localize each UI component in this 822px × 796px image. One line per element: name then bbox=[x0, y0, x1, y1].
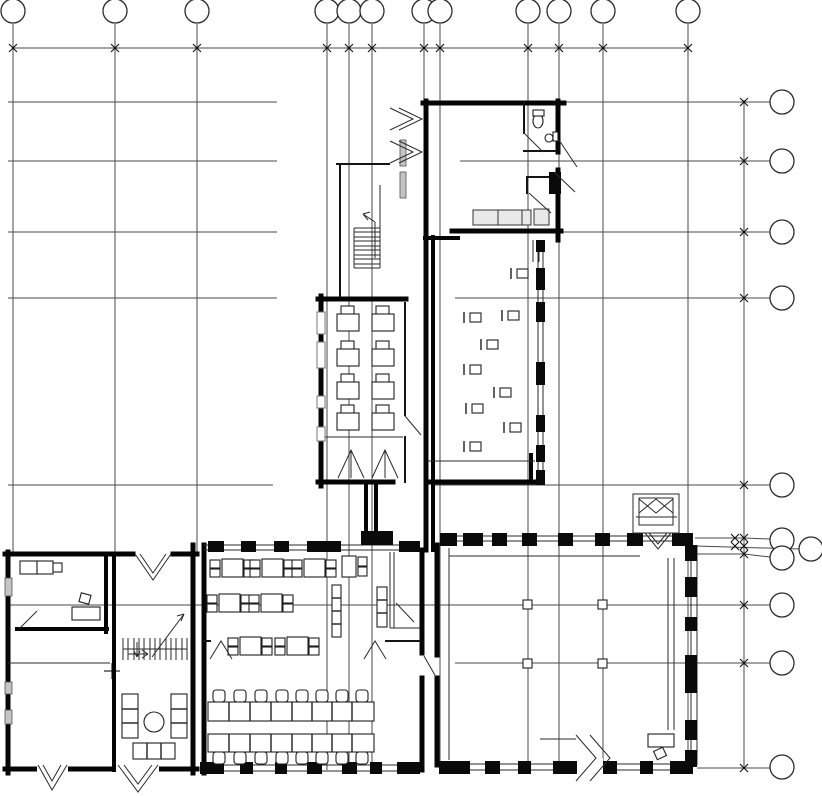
grid-bubbles bbox=[770, 546, 794, 570]
floor-plan-drawing bbox=[0, 0, 822, 796]
furniture bbox=[144, 712, 164, 732]
furniture bbox=[336, 752, 348, 764]
windows-in-wall bbox=[317, 396, 325, 408]
layer-grid-bubbles bbox=[1, 0, 822, 779]
wall-piers bbox=[549, 172, 561, 194]
furniture bbox=[342, 556, 356, 577]
wall-piers bbox=[518, 761, 531, 774]
door-swings-and-symbols bbox=[639, 498, 673, 525]
furniture bbox=[275, 638, 285, 646]
wall-piers bbox=[361, 531, 393, 545]
wall-piers bbox=[685, 617, 697, 631]
wall-piers bbox=[536, 445, 545, 462]
door-swings-and-symbols bbox=[364, 641, 386, 659]
wall-piers bbox=[485, 761, 500, 774]
wall-piers bbox=[685, 750, 697, 767]
furniture bbox=[372, 314, 394, 331]
furniture bbox=[508, 311, 519, 320]
furniture bbox=[207, 595, 217, 603]
furniture bbox=[523, 600, 532, 609]
door-swings-and-symbols bbox=[135, 554, 171, 580]
door-swings-and-symbols bbox=[639, 499, 673, 513]
door-swings-and-symbols bbox=[396, 603, 414, 622]
wall-piers bbox=[536, 302, 545, 322]
wall-piers bbox=[399, 541, 420, 552]
layer-wall-faces-thin bbox=[8, 185, 697, 771]
furniture bbox=[276, 690, 288, 702]
wall-piers bbox=[274, 541, 289, 552]
grid-bubbles bbox=[770, 149, 794, 173]
wall-piers bbox=[439, 761, 470, 774]
grid-bubbles bbox=[770, 473, 794, 497]
furniture bbox=[377, 587, 387, 627]
grid-bubbles bbox=[770, 90, 794, 114]
furniture bbox=[208, 702, 374, 721]
furniture bbox=[210, 560, 220, 568]
wall-piers bbox=[522, 533, 537, 546]
door-swings-and-symbols bbox=[142, 650, 148, 654]
furniture bbox=[337, 382, 359, 399]
furniture bbox=[249, 604, 259, 612]
furniture bbox=[296, 690, 308, 702]
grid-bubbles bbox=[337, 0, 361, 23]
grid-bubbles bbox=[516, 0, 540, 23]
wall-piers bbox=[208, 541, 224, 552]
furniture bbox=[372, 413, 394, 430]
grid-bubbles bbox=[591, 0, 615, 23]
bench-seats bbox=[522, 210, 531, 225]
layer-bench-seats bbox=[473, 209, 549, 225]
wall-piers bbox=[558, 533, 573, 546]
door-swings-and-symbols bbox=[405, 416, 421, 435]
furniture bbox=[219, 594, 240, 612]
layer-walls-medium bbox=[17, 237, 531, 770]
wall-piers bbox=[553, 761, 577, 774]
furniture bbox=[292, 560, 302, 568]
furniture bbox=[276, 752, 288, 764]
grid-bubbles bbox=[770, 286, 794, 310]
furniture bbox=[533, 110, 544, 116]
furniture bbox=[510, 423, 521, 432]
furniture bbox=[207, 604, 217, 612]
furniture bbox=[283, 595, 293, 603]
furniture bbox=[337, 314, 359, 331]
furniture bbox=[213, 752, 225, 764]
furniture bbox=[262, 638, 272, 646]
grid-lines bbox=[744, 554, 770, 557]
door-swings-and-symbols bbox=[140, 554, 166, 573]
furniture bbox=[309, 647, 319, 655]
door-swings-and-symbols bbox=[399, 108, 422, 130]
furniture bbox=[309, 638, 319, 646]
furniture bbox=[316, 690, 328, 702]
layer-walls-exterior bbox=[5, 101, 564, 773]
furniture bbox=[210, 569, 220, 577]
furniture bbox=[222, 559, 243, 577]
furniture bbox=[208, 734, 374, 752]
furniture bbox=[654, 747, 667, 759]
furniture bbox=[228, 647, 238, 655]
grid-bubbles bbox=[547, 0, 571, 23]
window-tabs bbox=[5, 710, 12, 724]
furniture bbox=[372, 349, 394, 366]
furniture bbox=[358, 567, 367, 576]
furniture bbox=[598, 600, 607, 609]
furniture bbox=[249, 595, 259, 603]
door-swings-and-symbols bbox=[142, 654, 148, 658]
furniture bbox=[20, 561, 37, 574]
furniture bbox=[337, 413, 359, 430]
door-swings-and-symbols bbox=[639, 499, 673, 513]
windows-in-wall bbox=[317, 312, 325, 334]
wall-piers bbox=[370, 762, 382, 774]
furniture bbox=[304, 559, 325, 577]
furniture bbox=[326, 569, 336, 577]
window-tabs bbox=[400, 172, 406, 198]
grid-bubbles bbox=[360, 0, 384, 23]
furniture bbox=[648, 734, 674, 747]
grid-lines bbox=[744, 538, 770, 539]
wall-piers bbox=[536, 362, 545, 385]
wall-piers bbox=[536, 240, 545, 252]
furniture bbox=[500, 388, 511, 397]
bench-seats bbox=[498, 210, 522, 225]
furniture bbox=[255, 752, 267, 764]
furniture bbox=[517, 269, 528, 278]
door-swings-and-symbols bbox=[649, 533, 667, 544]
furniture bbox=[356, 752, 368, 764]
furniture bbox=[171, 694, 187, 738]
furniture bbox=[296, 752, 308, 764]
furniture bbox=[470, 442, 481, 451]
furniture bbox=[358, 557, 367, 566]
furniture bbox=[326, 560, 336, 568]
door-swings-and-symbols bbox=[363, 214, 375, 222]
door-swings-and-symbols bbox=[390, 108, 413, 130]
wall-gaps bbox=[116, 763, 159, 776]
wall-piers bbox=[492, 533, 507, 546]
furniture bbox=[287, 637, 308, 655]
grid-bubbles bbox=[1, 0, 25, 23]
furniture bbox=[261, 594, 282, 612]
wall-piers bbox=[685, 577, 697, 597]
wall-piers bbox=[685, 720, 697, 740]
wall-piers bbox=[536, 268, 545, 290]
wall-gaps bbox=[577, 758, 603, 774]
grid-bubbles bbox=[676, 0, 700, 23]
wall-piers bbox=[241, 541, 256, 552]
grid-ticks bbox=[731, 542, 739, 550]
grid-bubbles bbox=[770, 220, 794, 244]
furniture bbox=[133, 743, 175, 759]
grid-bubbles bbox=[770, 593, 794, 617]
furniture bbox=[250, 560, 260, 568]
furniture bbox=[372, 382, 394, 399]
furniture bbox=[553, 132, 558, 141]
furniture bbox=[336, 690, 348, 702]
wall-piers bbox=[627, 533, 643, 546]
grid-bubbles bbox=[185, 0, 209, 23]
furniture bbox=[523, 659, 532, 668]
wall-piers bbox=[640, 761, 653, 774]
furniture bbox=[79, 593, 91, 604]
furniture bbox=[316, 752, 328, 764]
grid-bubbles bbox=[103, 0, 127, 23]
bench-seats bbox=[534, 209, 549, 225]
wall-piers bbox=[685, 655, 697, 693]
windows-in-wall bbox=[317, 427, 325, 441]
wall-piers bbox=[440, 533, 457, 546]
furniture bbox=[470, 313, 481, 322]
grid-bubbles bbox=[770, 755, 794, 779]
door-swings-and-symbols bbox=[19, 611, 37, 629]
furniture bbox=[255, 690, 267, 702]
furniture bbox=[250, 569, 260, 577]
wall-gaps bbox=[37, 763, 68, 776]
wall-piers bbox=[595, 533, 610, 546]
wall-piers bbox=[307, 541, 341, 552]
wall-piers bbox=[672, 533, 693, 546]
windows-in-wall bbox=[317, 342, 325, 368]
door-swings-and-symbols bbox=[559, 140, 577, 167]
door-swings-and-symbols bbox=[363, 212, 370, 214]
furniture bbox=[234, 690, 246, 702]
furniture bbox=[283, 604, 293, 612]
wall-piers bbox=[536, 415, 545, 432]
grid-bubbles bbox=[799, 537, 822, 561]
furniture bbox=[262, 559, 283, 577]
furniture bbox=[545, 134, 553, 142]
furniture bbox=[487, 340, 498, 349]
furniture bbox=[337, 349, 359, 366]
furniture bbox=[470, 365, 481, 374]
furniture bbox=[356, 690, 368, 702]
bench-seats bbox=[473, 210, 498, 225]
furniture bbox=[228, 638, 238, 646]
wall-piers bbox=[536, 470, 545, 485]
grid-bubbles bbox=[770, 651, 794, 675]
furniture bbox=[472, 404, 483, 413]
furniture bbox=[275, 647, 285, 655]
door-swings-and-symbols bbox=[152, 614, 184, 657]
furniture bbox=[598, 659, 607, 668]
wall-piers bbox=[463, 533, 483, 546]
furniture bbox=[122, 694, 138, 738]
grid-bubbles bbox=[428, 0, 452, 23]
furniture bbox=[213, 690, 225, 702]
door-swings-and-symbols bbox=[424, 656, 436, 677]
wall-piers bbox=[685, 545, 697, 561]
wall-piers bbox=[397, 762, 420, 774]
floor-plan-page bbox=[0, 0, 822, 796]
furniture bbox=[240, 637, 261, 655]
furniture bbox=[37, 561, 53, 574]
window-tabs bbox=[5, 578, 12, 596]
door-swings-and-symbols bbox=[524, 133, 543, 152]
grid-bubbles bbox=[315, 0, 339, 23]
window-tabs bbox=[5, 682, 12, 694]
furniture bbox=[72, 607, 100, 620]
furniture bbox=[292, 569, 302, 577]
furniture bbox=[53, 563, 62, 572]
furniture bbox=[262, 647, 272, 655]
furniture bbox=[234, 752, 246, 764]
